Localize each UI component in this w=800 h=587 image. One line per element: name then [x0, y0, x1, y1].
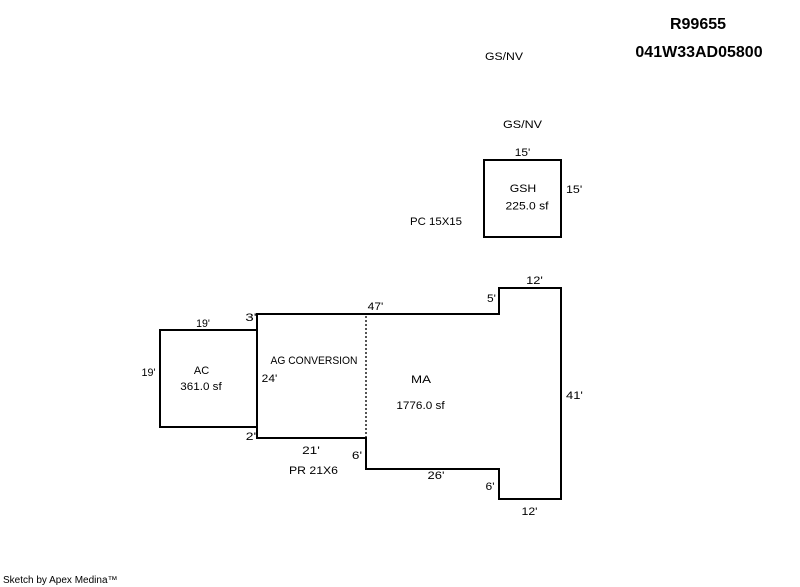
- svg-text:R99655: R99655: [670, 16, 726, 33]
- svg-text:PC 15X15: PC 15X15: [410, 216, 462, 228]
- svg-text:26': 26': [428, 470, 445, 482]
- svg-text:1776.0 sf: 1776.0 sf: [396, 400, 445, 412]
- svg-text:AG CONVERSION: AG CONVERSION: [271, 355, 358, 367]
- svg-text:225.0 sf: 225.0 sf: [506, 201, 550, 213]
- svg-text:GS/NV: GS/NV: [485, 51, 524, 63]
- svg-text:AC: AC: [194, 365, 209, 377]
- svg-text:12': 12': [526, 275, 543, 287]
- svg-text:GSH: GSH: [510, 183, 537, 195]
- svg-text:12': 12': [522, 506, 538, 518]
- svg-text:MA: MA: [411, 374, 432, 386]
- svg-text:19': 19': [196, 318, 210, 330]
- svg-text:041W33AD05800: 041W33AD05800: [635, 44, 762, 61]
- svg-text:Sketch by Apex Medina™: Sketch by Apex Medina™: [3, 575, 118, 586]
- svg-text:24': 24': [262, 373, 278, 385]
- svg-text:15': 15': [515, 147, 531, 159]
- svg-text:41': 41': [566, 390, 583, 402]
- svg-text:47': 47': [368, 301, 384, 313]
- svg-text:PR 21X6: PR 21X6: [289, 465, 338, 477]
- svg-text:15': 15': [566, 184, 582, 196]
- svg-text:3': 3': [245, 312, 256, 324]
- svg-text:19': 19': [142, 367, 156, 379]
- svg-text:5': 5': [487, 293, 496, 305]
- svg-text:21': 21': [302, 445, 320, 457]
- svg-text:2': 2': [246, 431, 256, 443]
- svg-text:361.0 sf: 361.0 sf: [180, 381, 222, 393]
- svg-text:6': 6': [486, 481, 495, 493]
- svg-text:6': 6': [352, 450, 362, 462]
- svg-text:GS/NV: GS/NV: [503, 119, 543, 131]
